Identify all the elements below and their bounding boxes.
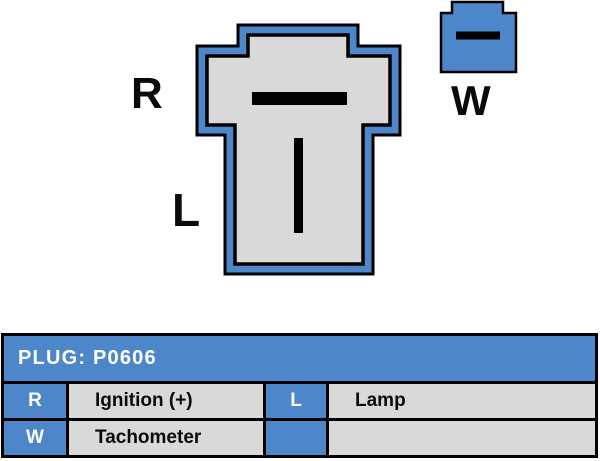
pin-key-empty xyxy=(266,421,326,455)
plug-pinout-diagram: R L W PLUG: P0606 R Ignition (+) L Lamp … xyxy=(0,0,600,461)
pin-function-r: Ignition (+) xyxy=(69,384,263,418)
pin-key-l: L xyxy=(266,384,326,418)
plug-table-title: PLUG: P0606 xyxy=(4,336,595,381)
pin-function-empty xyxy=(329,421,595,455)
connector-drawing xyxy=(0,0,600,310)
terminal-label-w: W xyxy=(451,80,491,122)
pin-function-l: Lamp xyxy=(329,384,595,418)
pin-key-r: R xyxy=(4,384,66,418)
terminal-l-blade xyxy=(294,138,303,233)
terminal-label-r: R xyxy=(131,72,163,116)
terminal-label-l: L xyxy=(172,187,200,233)
pin-key-w: W xyxy=(4,421,66,455)
pin-function-w: Tachometer xyxy=(69,421,263,455)
terminal-w-blade xyxy=(456,32,500,40)
terminal-r-blade xyxy=(252,92,347,105)
plug-table: PLUG: P0606 R Ignition (+) L Lamp W Tach… xyxy=(1,333,598,458)
